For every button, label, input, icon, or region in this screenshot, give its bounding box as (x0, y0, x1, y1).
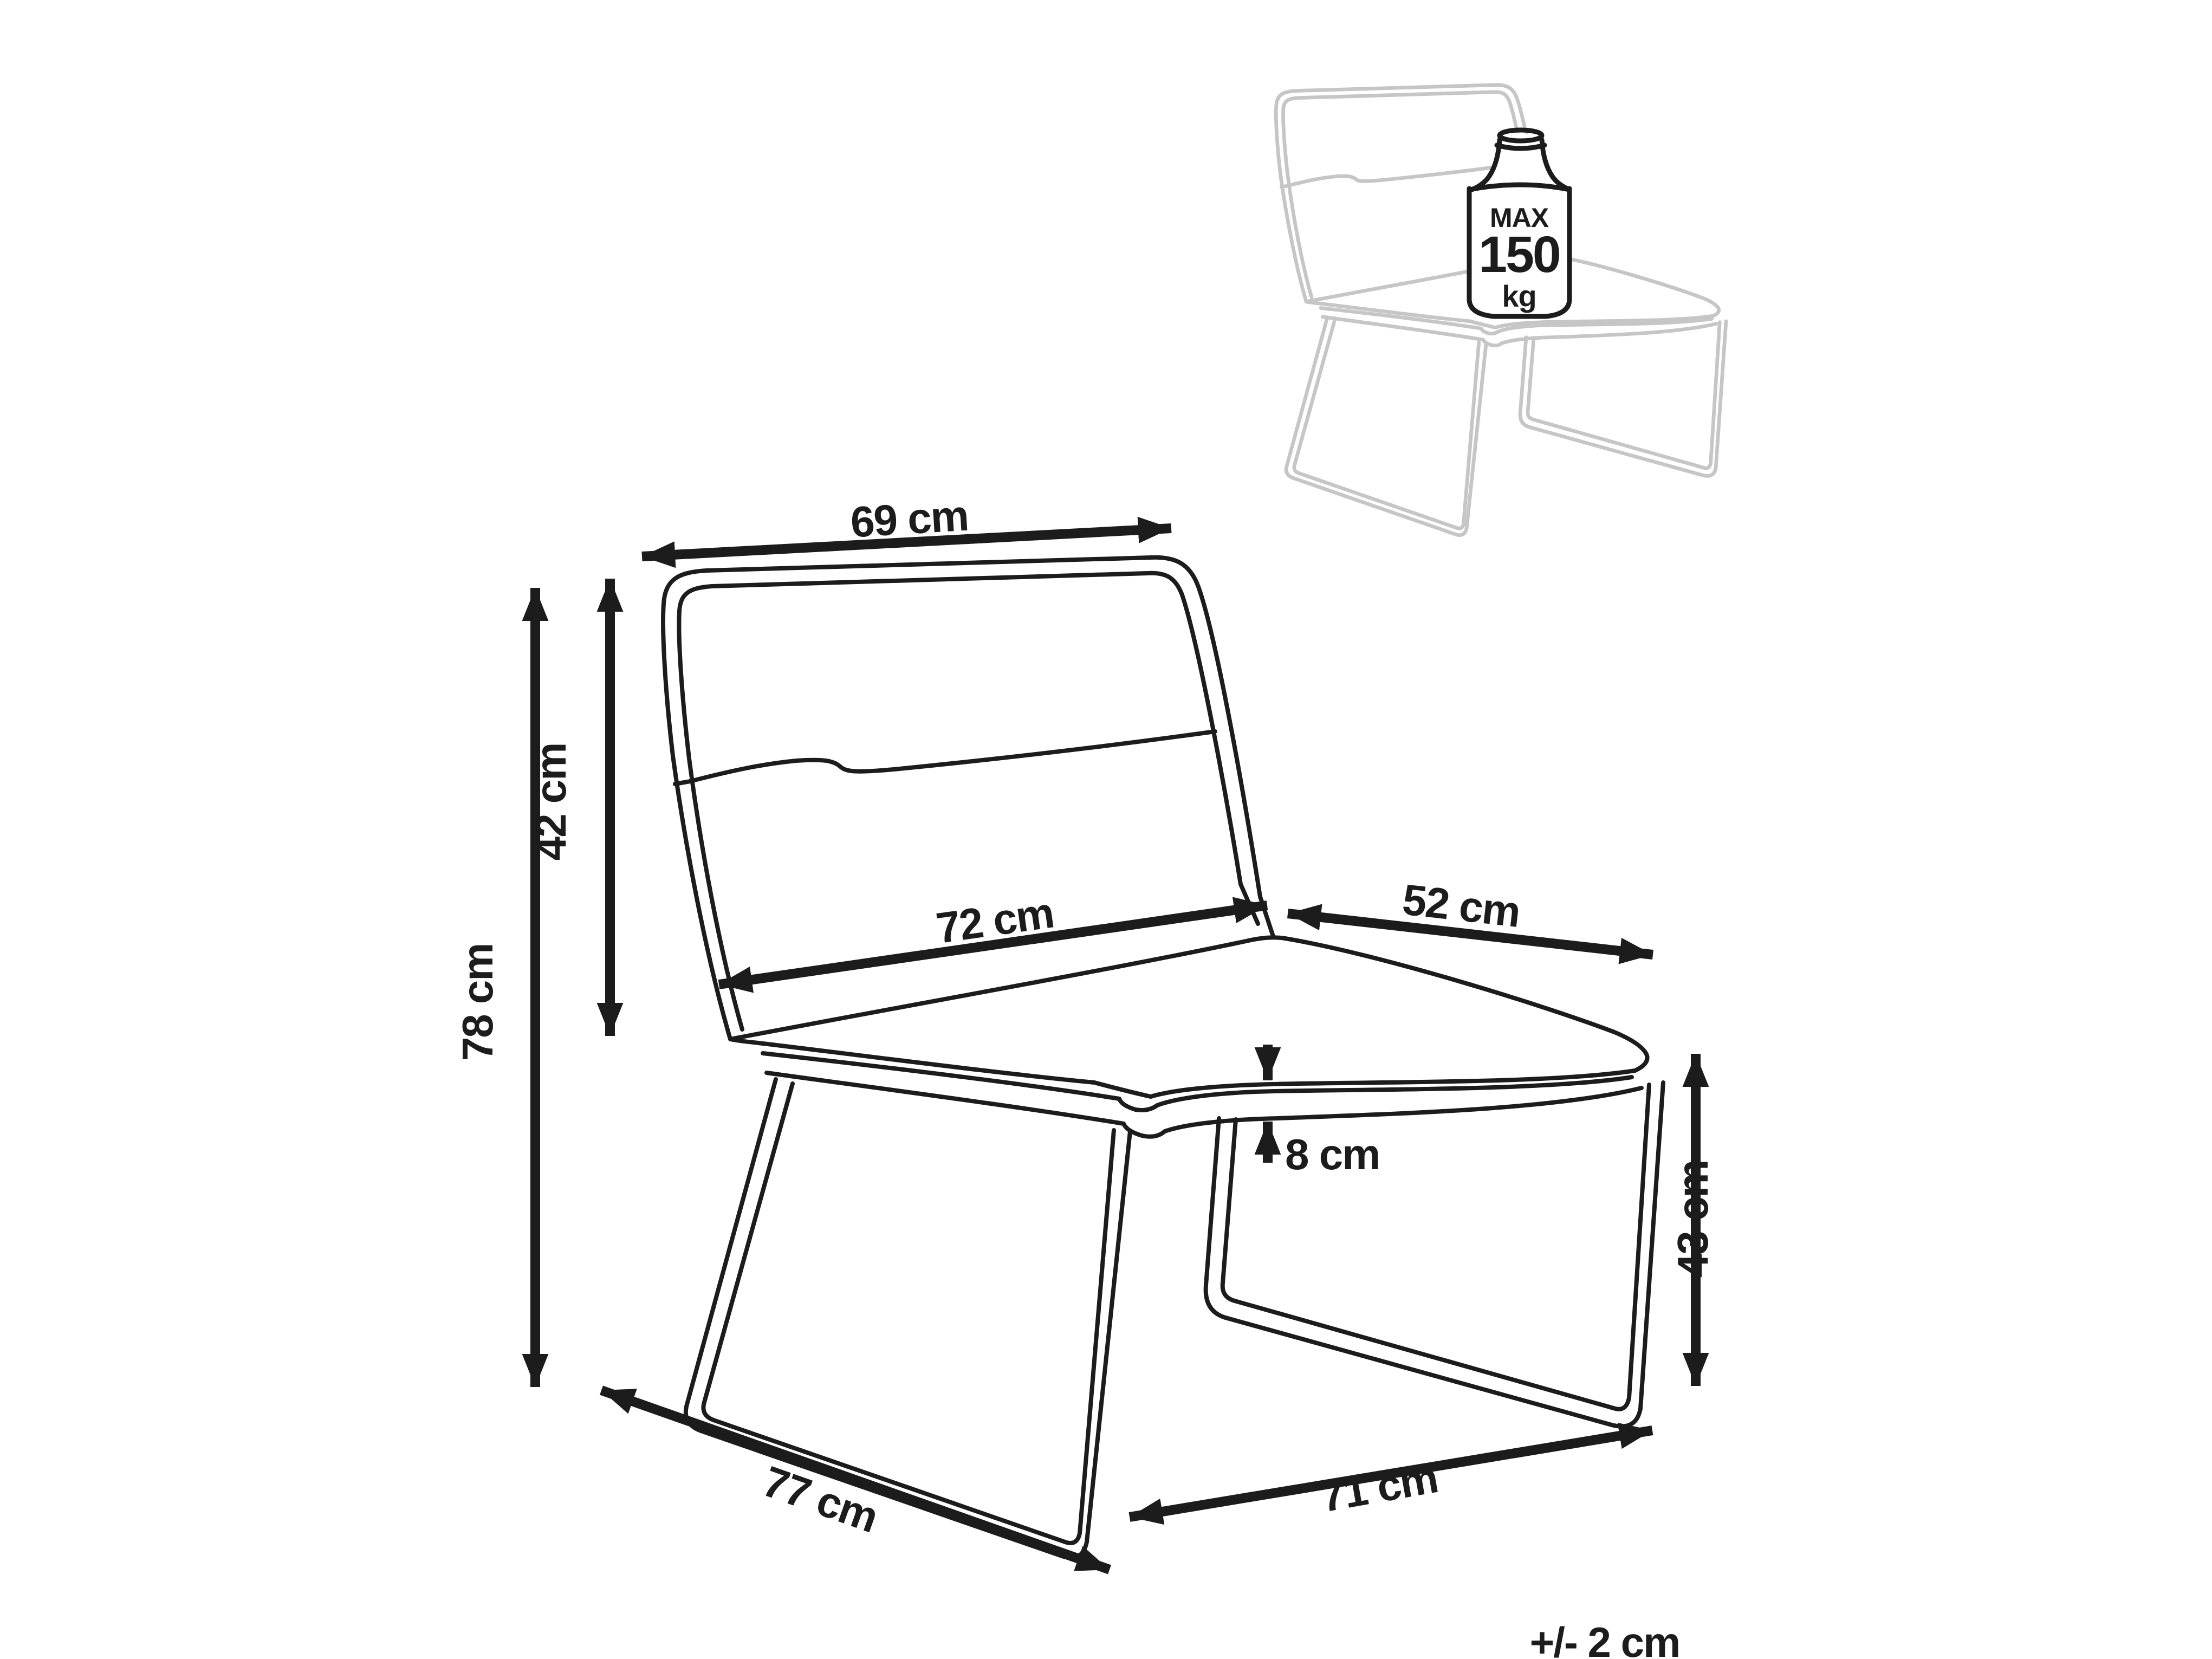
main-chair-line-art (663, 558, 1663, 1558)
label-overall-height: 78 cm (453, 944, 502, 1061)
max-load-line2: 150 (1478, 226, 1560, 283)
label-back-width: 69 cm (849, 491, 969, 547)
arrow-base-depth (601, 1390, 1110, 1570)
weight-icon: MAX 150 kg (1469, 130, 1569, 316)
max-load-line3: kg (1502, 279, 1536, 313)
dimension-diagram: MAX 150 kg 69 cm 42 cm 78 cm 72 cm (0, 0, 2212, 1659)
diagram-svg: MAX 150 kg 69 cm 42 cm 78 cm 72 cm (0, 0, 2212, 1659)
label-clearance-height: 43 cm (1669, 1161, 1717, 1278)
label-cushion-thickness: 8 cm (1285, 1130, 1379, 1178)
label-backrest-height: 42 cm (527, 743, 575, 861)
label-base-width: 71 cm (1317, 1453, 1441, 1521)
tolerance-note: +/- 2 cm (1530, 1618, 1680, 1659)
dimension-arrows (535, 528, 1696, 1570)
